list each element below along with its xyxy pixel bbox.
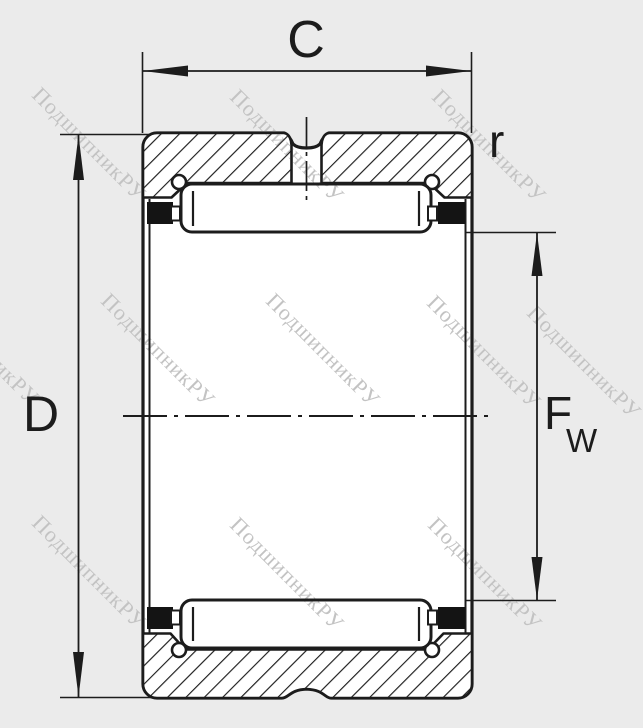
dim-c-arrow-left [143, 66, 188, 77]
label-width-c: C [287, 11, 325, 69]
cage-section-top-right [438, 202, 465, 224]
needle-roller-top [181, 184, 431, 232]
dim-d-arrow-bottom [73, 652, 84, 697]
cage-section-top-left [147, 202, 173, 224]
dim-d-arrow-top [73, 135, 84, 180]
bearing-diagram: C r D F W [0, 0, 643, 728]
cage-step-top-left [171, 207, 180, 221]
dim-fw-arrow-bottom [532, 557, 543, 600]
dim-fw-arrow-top [532, 233, 543, 276]
cage-step-bottom-right [428, 611, 437, 625]
cage-step-bottom-left [171, 611, 180, 625]
needle-roller-bottom [181, 600, 431, 648]
label-outer-diameter-d: D [23, 386, 59, 442]
drawing-canvas: C r D F W ПодшипникРУ ПодшипникРУ Подшип… [0, 0, 643, 728]
cage-section-bottom-right [438, 607, 465, 629]
cage-step-top-right [428, 207, 437, 221]
cage-section-bottom-left [147, 607, 173, 629]
dim-c-arrow-right [426, 66, 471, 77]
label-corner-radius-r: r [489, 115, 504, 167]
label-bore-diameter-w-subscript: W [566, 422, 598, 459]
